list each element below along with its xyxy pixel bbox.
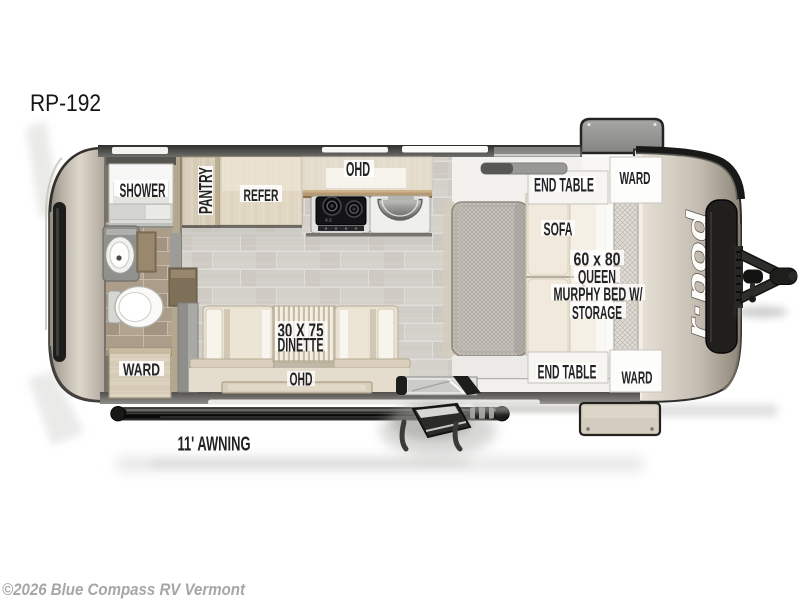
svg-text:SOFA: SOFA bbox=[544, 219, 573, 240]
svg-text:OHD: OHD bbox=[290, 369, 313, 390]
svg-text:DINETTE: DINETTE bbox=[278, 336, 324, 357]
svg-text:11' AWNING: 11' AWNING bbox=[178, 434, 251, 456]
svg-text:END TABLE: END TABLE bbox=[538, 362, 597, 384]
svg-text:REFER: REFER bbox=[244, 186, 279, 205]
svg-text:WARD: WARD bbox=[620, 168, 651, 188]
svg-text:END TABLE: END TABLE bbox=[534, 175, 594, 197]
svg-text:©2026 Blue Compass RV Vermont: ©2026 Blue Compass RV Vermont bbox=[2, 580, 246, 599]
svg-text:WARD: WARD bbox=[622, 368, 653, 388]
svg-text:WARD: WARD bbox=[123, 360, 160, 380]
svg-text:4.6: 4.6 bbox=[325, 218, 332, 224]
svg-text:PANTRY: PANTRY bbox=[195, 167, 216, 214]
svg-text:STORAGE: STORAGE bbox=[572, 302, 622, 323]
svg-text:SHOWER: SHOWER bbox=[120, 181, 166, 202]
svg-text:OHD: OHD bbox=[346, 158, 370, 181]
svg-text:RP-192: RP-192 bbox=[30, 90, 101, 117]
